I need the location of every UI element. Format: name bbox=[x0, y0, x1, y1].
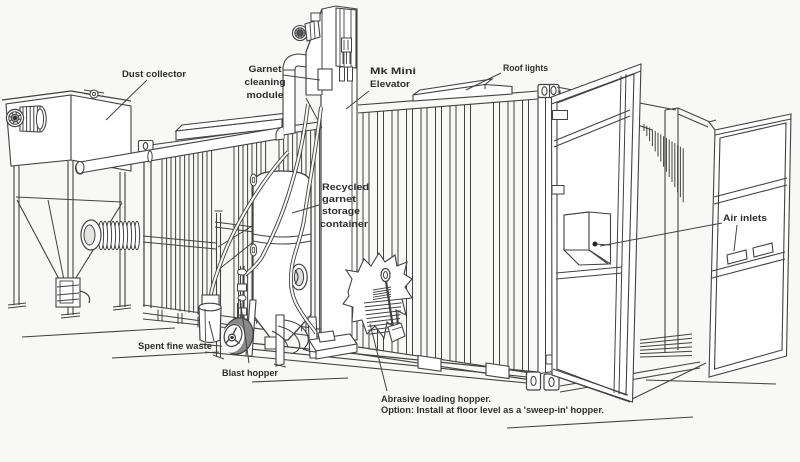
svg-text:Recycled: Recycled bbox=[322, 182, 369, 193]
svg-text:module: module bbox=[247, 90, 284, 101]
svg-text:Air inlets: Air inlets bbox=[723, 213, 767, 224]
svg-text:Option: Install at floor level: Option: Install at floor level as a 'swe… bbox=[381, 405, 604, 416]
svg-text:storage: storage bbox=[322, 206, 360, 217]
svg-text:Blast hopper: Blast hopper bbox=[222, 368, 278, 379]
svg-text:Garnet: Garnet bbox=[249, 64, 283, 75]
svg-text:Abrasive loading hopper.: Abrasive loading hopper. bbox=[381, 394, 491, 405]
svg-text:Spent fine waste: Spent fine waste bbox=[138, 341, 212, 352]
svg-text:Dust collector: Dust collector bbox=[122, 69, 186, 80]
svg-text:Roof lights: Roof lights bbox=[503, 63, 548, 74]
svg-text:garnet: garnet bbox=[322, 194, 357, 205]
svg-text:Mk Mini: Mk Mini bbox=[370, 66, 416, 77]
svg-text:container: container bbox=[320, 219, 368, 230]
svg-text:Elevator: Elevator bbox=[370, 79, 410, 90]
svg-text:cleaning: cleaning bbox=[245, 77, 286, 88]
